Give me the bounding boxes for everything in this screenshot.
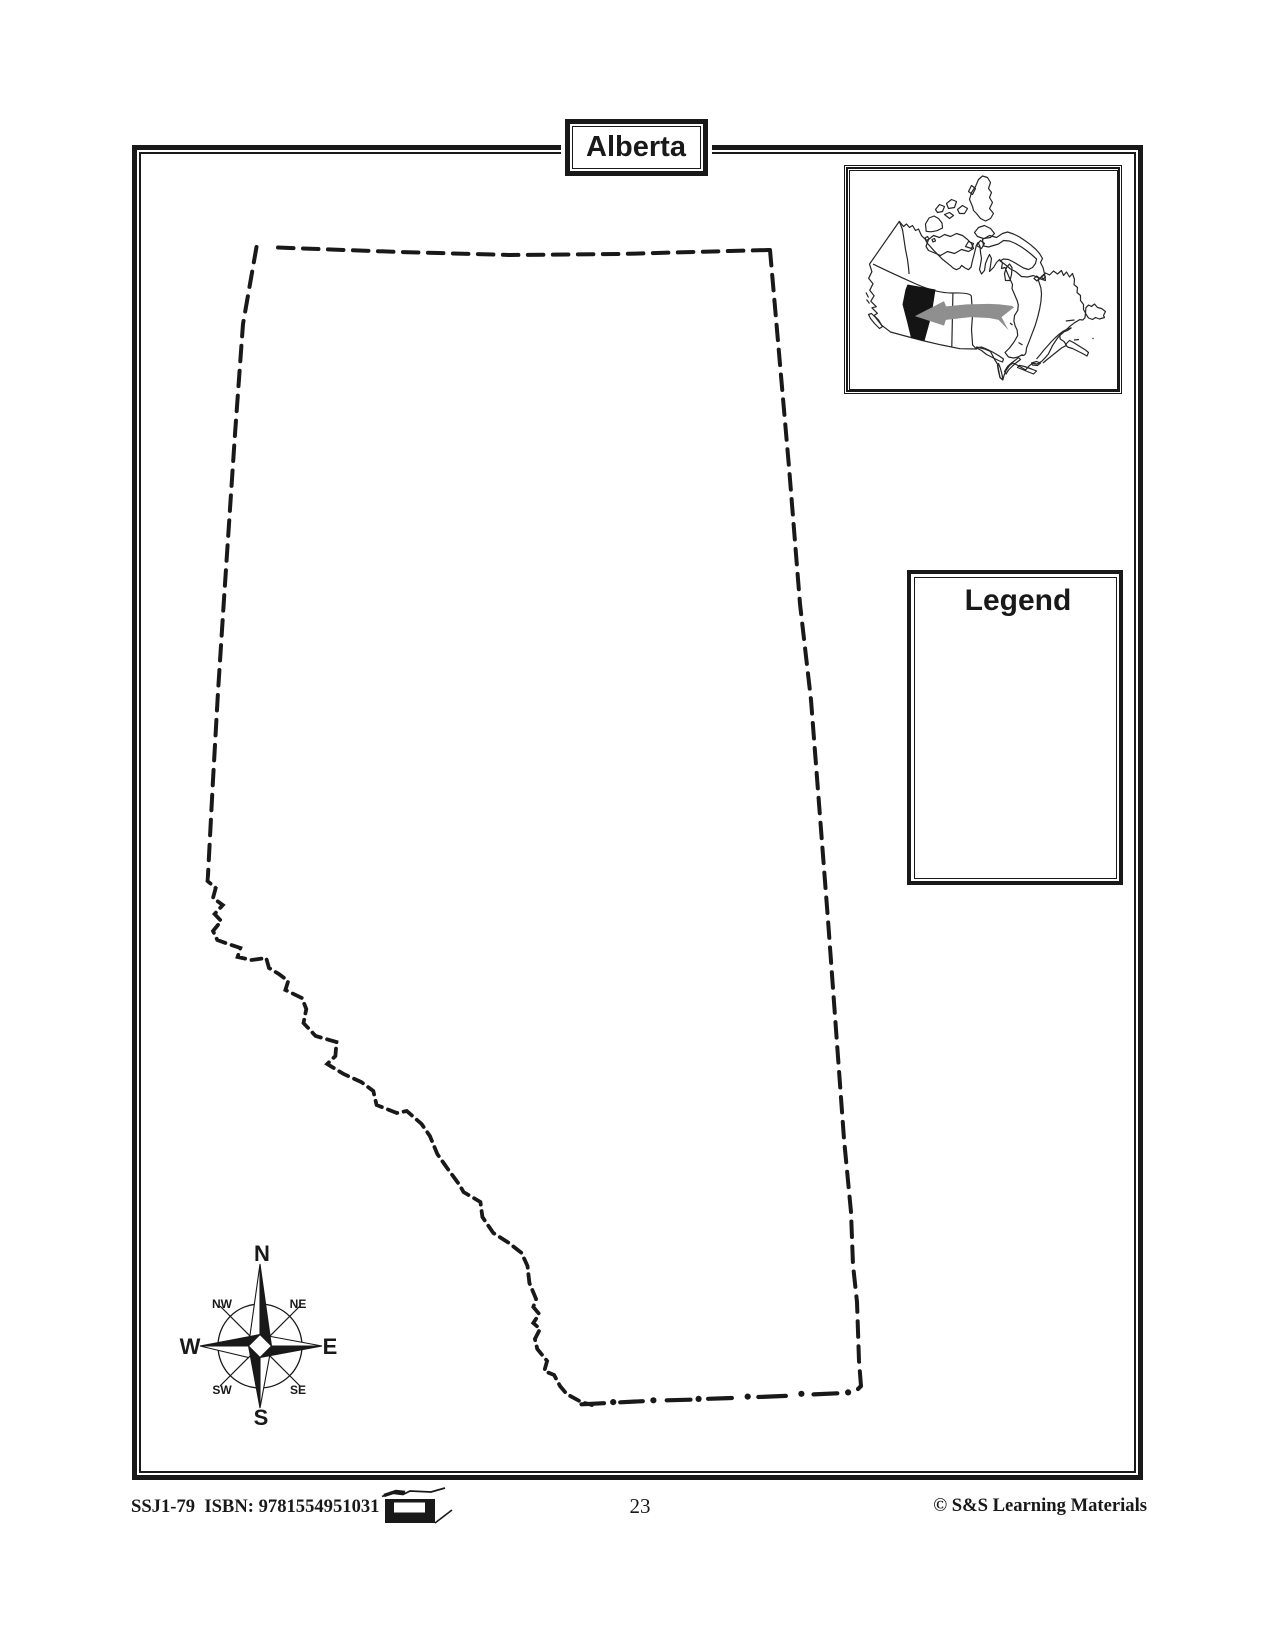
svg-text:W: W	[180, 1334, 201, 1359]
svg-text:N: N	[254, 1241, 270, 1266]
svg-text:E: E	[323, 1334, 338, 1359]
svg-text:SW: SW	[212, 1383, 232, 1397]
svg-text:SE: SE	[290, 1383, 306, 1397]
svg-text:NE: NE	[290, 1297, 307, 1311]
svg-text:NW: NW	[212, 1297, 233, 1311]
svg-text:S: S	[254, 1405, 269, 1430]
